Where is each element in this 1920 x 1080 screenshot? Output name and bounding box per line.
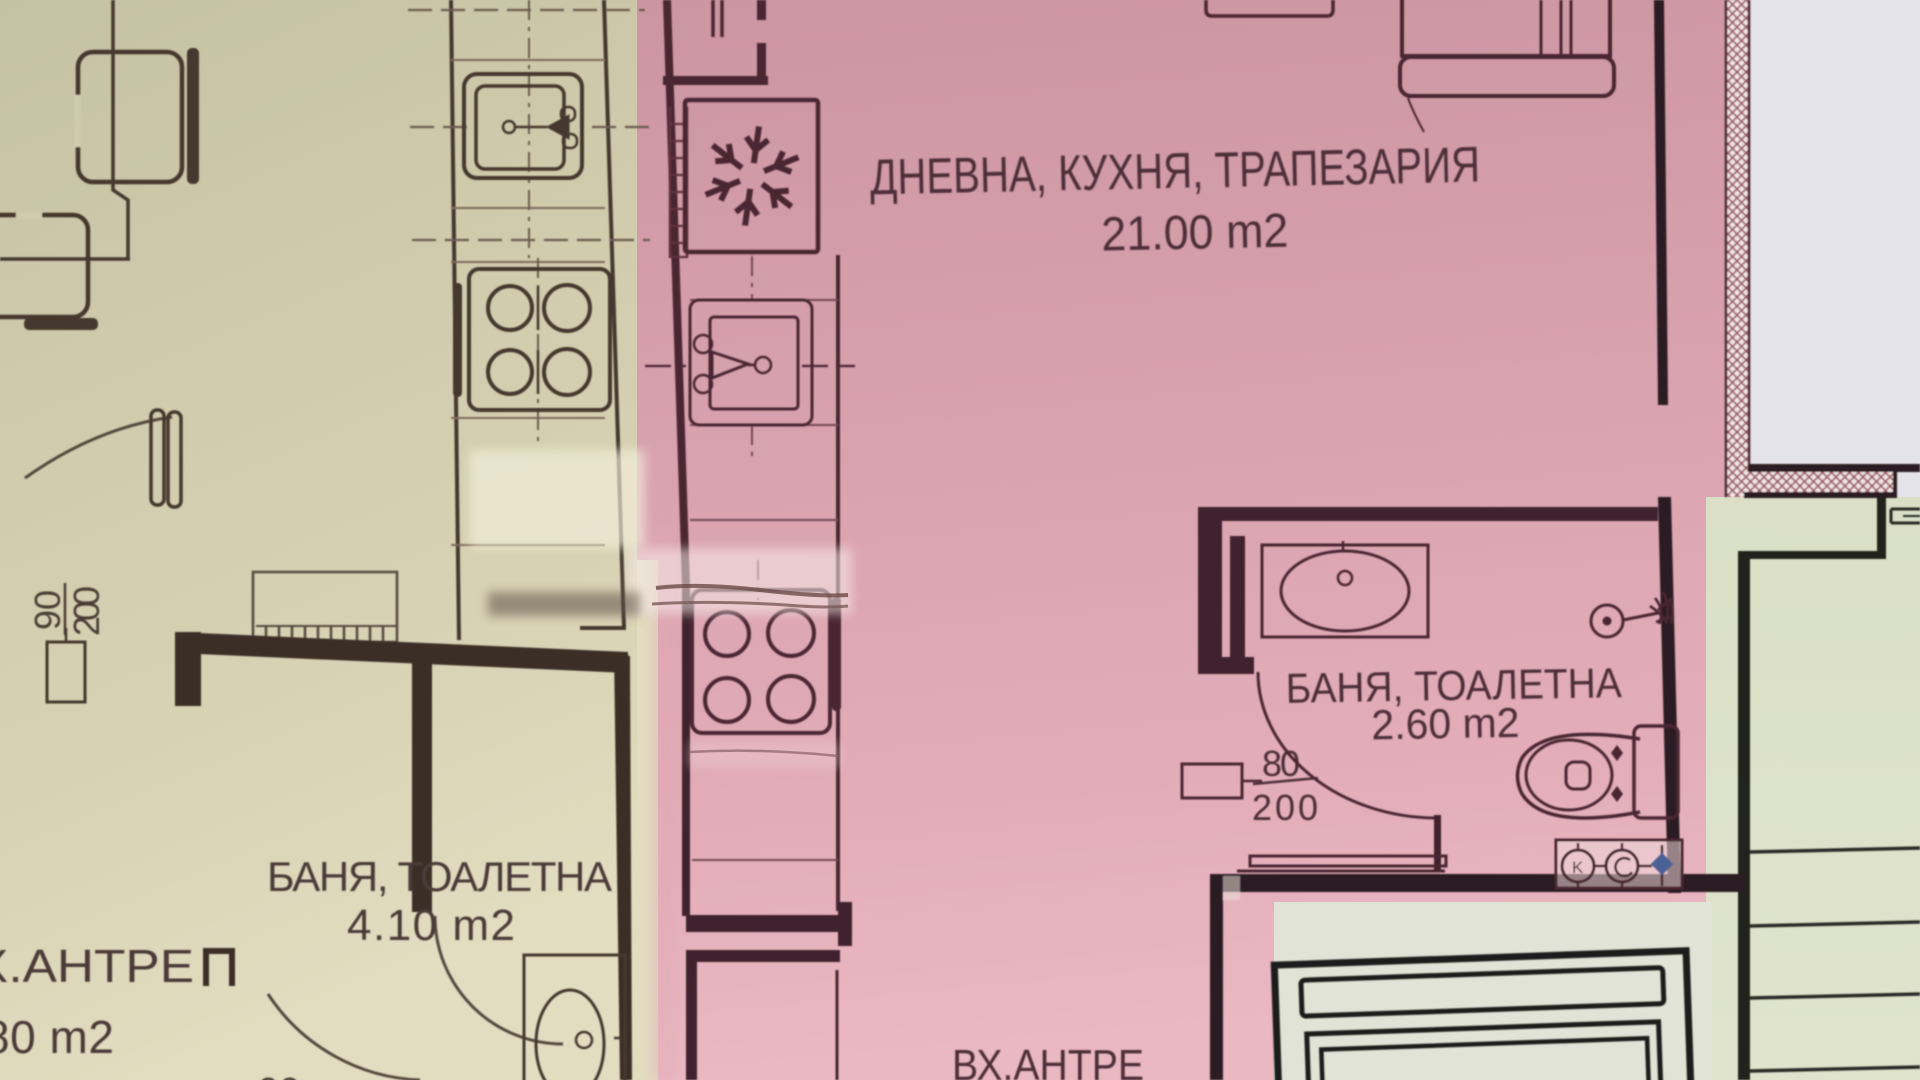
svg-text:200: 200 xyxy=(66,586,107,636)
svg-text:80: 80 xyxy=(1262,743,1300,784)
svg-text:90: 90 xyxy=(258,1071,300,1080)
svg-text:4.10 m2: 4.10 m2 xyxy=(347,901,515,950)
svg-text:200: 200 xyxy=(1252,787,1318,828)
svg-text:21.00 m2: 21.00 m2 xyxy=(1101,205,1289,262)
svg-text:2.60 m2: 2.60 m2 xyxy=(1371,699,1520,749)
svg-text:80 m2: 80 m2 xyxy=(0,1011,114,1063)
svg-text:БАНЯ, ТОАЛЕТНА: БАНЯ, ТОАЛЕТНА xyxy=(267,853,612,900)
svg-text:90: 90 xyxy=(27,590,68,630)
svg-text:K: K xyxy=(1572,858,1584,877)
svg-text:ВХ.АНТРЕ: ВХ.АНТРЕ xyxy=(0,940,194,992)
svg-text:ВХ.АНТРЕ: ВХ.АНТРЕ xyxy=(952,1041,1144,1080)
